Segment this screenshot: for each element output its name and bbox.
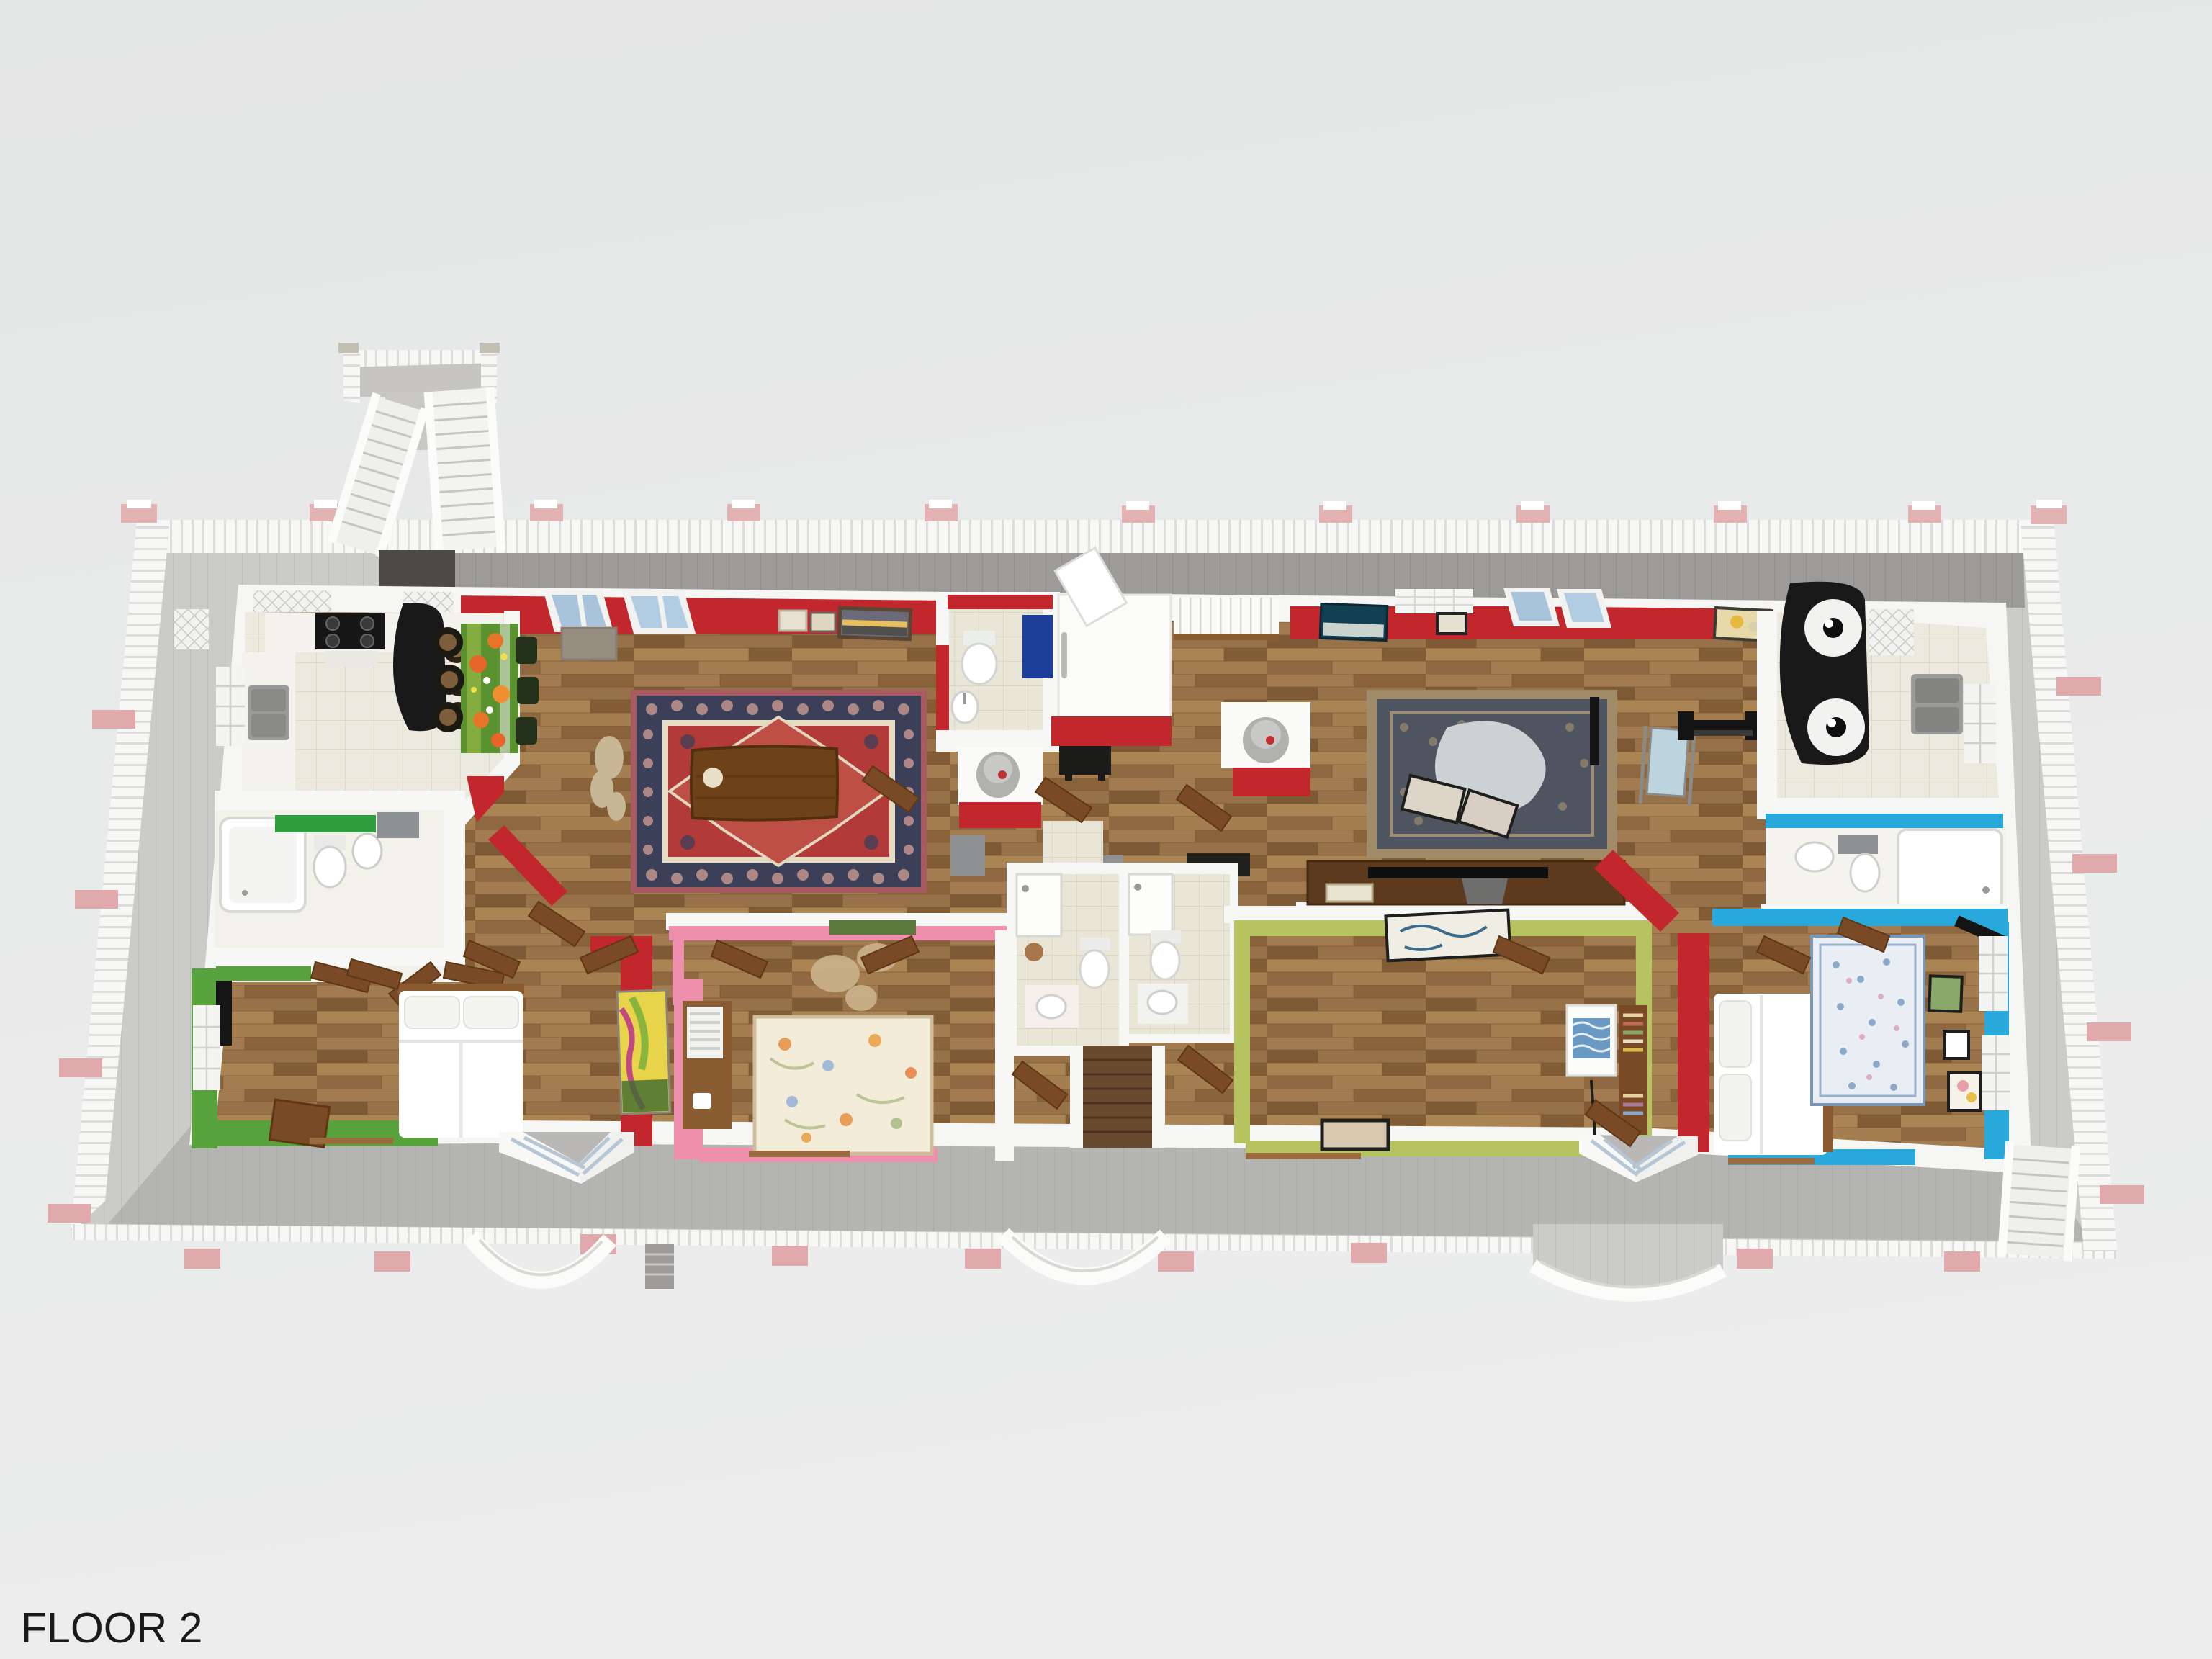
svg-text:FLOOR 2: FLOOR 2 — [21, 1604, 202, 1652]
